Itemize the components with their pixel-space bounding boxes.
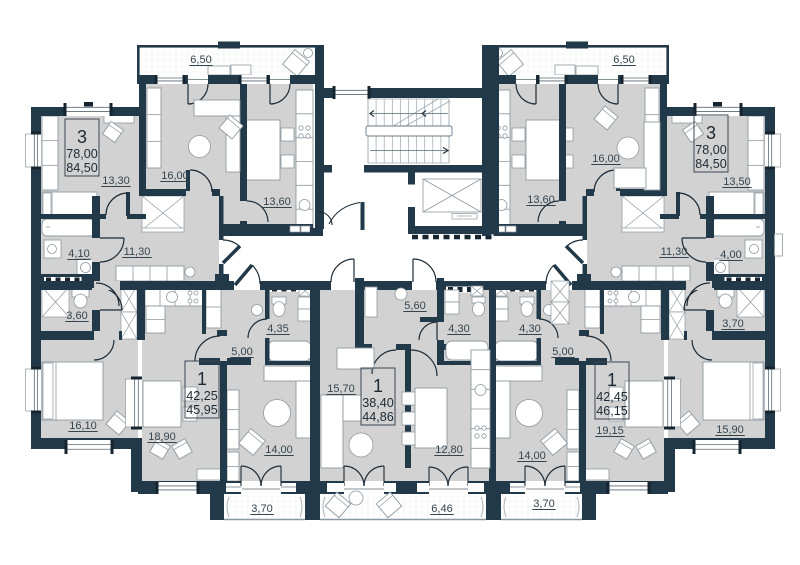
svg-text:84,50: 84,50 xyxy=(695,157,727,171)
svg-text:12,80: 12,80 xyxy=(435,444,463,456)
svg-text:84,50: 84,50 xyxy=(66,161,98,175)
svg-text:6,50: 6,50 xyxy=(613,54,634,66)
svg-text:1: 1 xyxy=(607,370,617,390)
svg-text:16,00: 16,00 xyxy=(592,153,620,165)
svg-text:11,30: 11,30 xyxy=(661,246,688,258)
svg-text:5,00: 5,00 xyxy=(231,346,252,358)
svg-text:44,86: 44,86 xyxy=(362,410,394,424)
svg-text:42,45: 42,45 xyxy=(596,390,628,404)
svg-text:42,25: 42,25 xyxy=(186,389,218,403)
svg-text:15,70: 15,70 xyxy=(327,383,355,395)
svg-text:4,00: 4,00 xyxy=(720,249,741,261)
svg-text:16,10: 16,10 xyxy=(69,420,97,432)
svg-text:1: 1 xyxy=(373,376,383,396)
svg-text:19,15: 19,15 xyxy=(596,425,624,437)
svg-text:18,90: 18,90 xyxy=(148,431,176,443)
svg-text:14,00: 14,00 xyxy=(265,444,293,456)
svg-text:13,30: 13,30 xyxy=(102,175,130,187)
svg-text:4,10: 4,10 xyxy=(68,248,89,260)
svg-text:78,00: 78,00 xyxy=(66,147,98,161)
svg-text:1: 1 xyxy=(197,369,207,389)
svg-text:14,00: 14,00 xyxy=(518,450,546,462)
svg-text:3,70: 3,70 xyxy=(722,318,743,330)
svg-text:13,60: 13,60 xyxy=(263,196,291,208)
svg-text:3,70: 3,70 xyxy=(251,503,272,515)
svg-text:3: 3 xyxy=(706,123,716,143)
svg-text:4,30: 4,30 xyxy=(448,323,469,335)
svg-text:5,00: 5,00 xyxy=(552,346,573,358)
svg-text:6,50: 6,50 xyxy=(190,54,211,66)
svg-text:3: 3 xyxy=(77,127,87,147)
svg-text:38,40: 38,40 xyxy=(362,396,394,410)
svg-text:78,00: 78,00 xyxy=(695,143,727,157)
svg-text:3,70: 3,70 xyxy=(533,498,554,510)
svg-text:6,46: 6,46 xyxy=(431,503,452,515)
svg-text:16,00: 16,00 xyxy=(161,170,189,182)
svg-text:4,30: 4,30 xyxy=(519,323,540,335)
svg-text:45,95: 45,95 xyxy=(186,403,218,417)
svg-text:13,60: 13,60 xyxy=(527,194,555,206)
svg-text:15,90: 15,90 xyxy=(716,424,744,436)
svg-text:5,60: 5,60 xyxy=(404,300,425,312)
svg-text:11,30: 11,30 xyxy=(124,246,151,258)
svg-text:4,35: 4,35 xyxy=(267,323,288,335)
svg-text:3,60: 3,60 xyxy=(66,310,87,322)
svg-text:46,15: 46,15 xyxy=(596,404,628,418)
svg-text:13,50: 13,50 xyxy=(723,176,751,188)
